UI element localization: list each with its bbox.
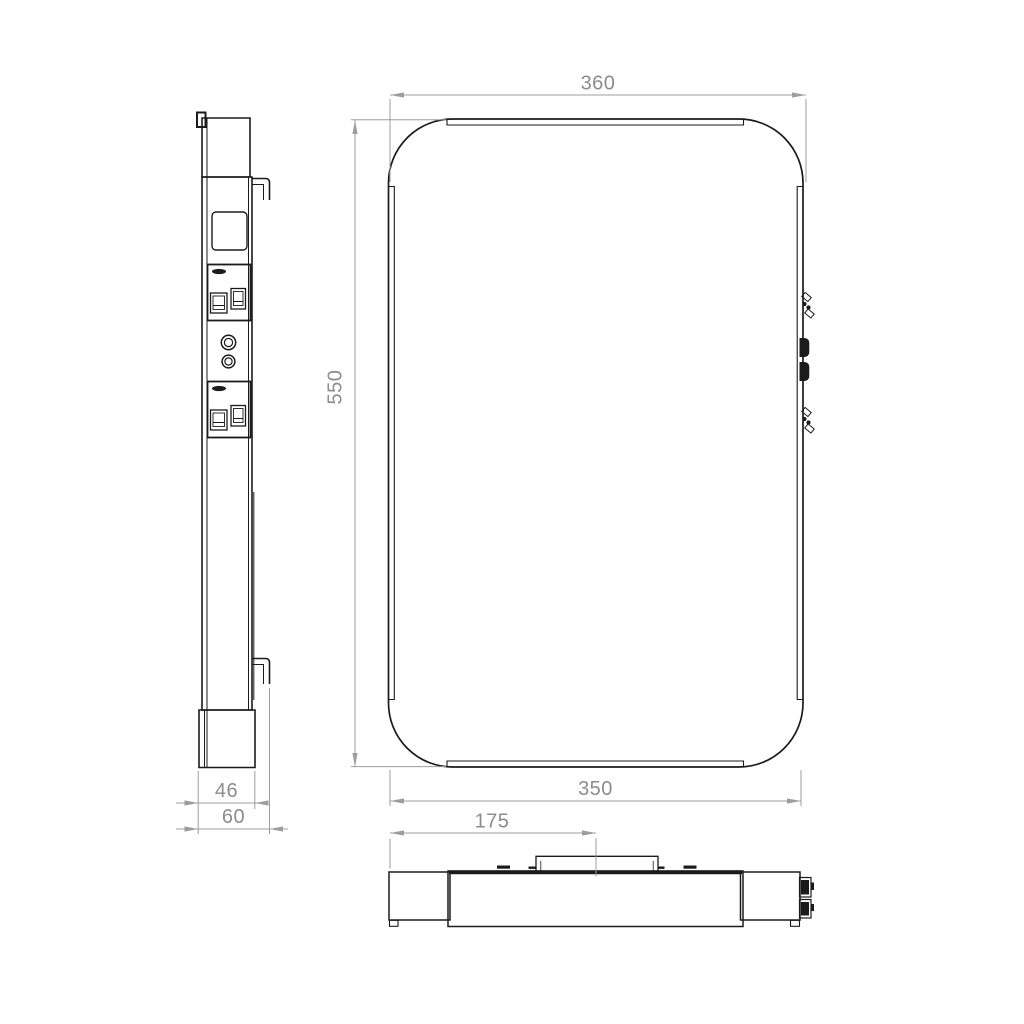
knob-inner-2 [225, 358, 232, 365]
socket-left-inner [213, 296, 225, 310]
front-panel-outline [389, 119, 804, 767]
front-bottom-strip [447, 761, 744, 767]
clip-plate [805, 424, 814, 433]
display-window [212, 212, 247, 250]
front-top-strip [447, 120, 744, 126]
knob-inner-1 [224, 338, 232, 346]
dimension-value: 350 [578, 778, 613, 800]
side-connector-1 [800, 878, 815, 898]
arrowhead [390, 830, 404, 835]
top-view-body [448, 871, 743, 927]
dimension-drawing: 46 60 [0, 0, 1024, 1024]
clip-pin [802, 417, 806, 421]
connector-body [801, 880, 809, 895]
edge-tick [684, 866, 697, 869]
wall-bracket-top [252, 179, 270, 201]
arrowhead [390, 92, 404, 97]
edge-tick [497, 866, 510, 869]
bracket-top-outer [252, 179, 270, 201]
mounting-tab-outline [536, 856, 658, 871]
dimension-value: 360 [581, 73, 616, 95]
foot-right [791, 920, 800, 926]
socket-left-inner [213, 413, 225, 427]
side-connector-2 [800, 900, 815, 919]
side-view: 46 60 [176, 113, 288, 835]
bracket-bottom-outer [252, 659, 270, 685]
side-top-cap [202, 118, 250, 177]
connector-nub [811, 904, 814, 911]
connector-nub [811, 883, 814, 891]
knob-outer-1 [221, 335, 235, 349]
terminal-label [212, 386, 226, 391]
terminal-block-top [208, 265, 251, 321]
edge-tick [529, 867, 536, 869]
panel-knob-tab-1 [800, 338, 810, 357]
dimension-value: 550 [325, 370, 347, 405]
dim-offset-175: 175 [390, 811, 596, 877]
front-left-strip [389, 187, 394, 700]
arrowhead [185, 800, 199, 805]
side-main-body [202, 177, 252, 710]
top-view: 175 [389, 811, 814, 927]
dim-width-top-360: 360 [390, 73, 806, 183]
arrowhead [792, 92, 806, 97]
arrowhead [270, 826, 284, 831]
dimension-value: 175 [475, 811, 510, 833]
top-view-left-cap [389, 872, 450, 920]
knob-outer-2 [222, 355, 235, 368]
terminal-block-bottom [208, 382, 251, 438]
clip-plate [805, 309, 814, 318]
arrowhead [185, 826, 199, 831]
wall-bracket-bottom [252, 659, 270, 685]
socket-right-inner [234, 409, 244, 423]
arrowhead [390, 798, 404, 803]
bracket-top-inner [252, 185, 264, 201]
panel-knob-tab-2 [800, 362, 810, 381]
arrowhead [582, 830, 596, 835]
terminal-label [212, 269, 226, 274]
socket-right-inner [234, 292, 244, 306]
top-view-right-cap [741, 872, 801, 920]
control-knobs [221, 335, 235, 368]
foot-left [390, 920, 399, 926]
arrowhead [787, 798, 801, 803]
front-view: 360 550 350 [325, 73, 815, 807]
front-right-strip [797, 187, 802, 700]
dim-width-bottom-350: 350 [390, 770, 801, 806]
dim-height-550: 550 [325, 120, 447, 767]
arrowhead [352, 120, 357, 134]
drawing-canvas: 46 60 [0, 0, 1024, 1024]
dimension-value: 46 [215, 780, 238, 802]
dim-depth-60: 60 [176, 806, 288, 832]
arrowhead [255, 800, 269, 805]
clip-pin [802, 302, 806, 306]
mounting-tab [536, 856, 658, 871]
dimension-value: 60 [222, 806, 245, 828]
arrowhead [352, 753, 357, 767]
connector-body [801, 902, 809, 916]
